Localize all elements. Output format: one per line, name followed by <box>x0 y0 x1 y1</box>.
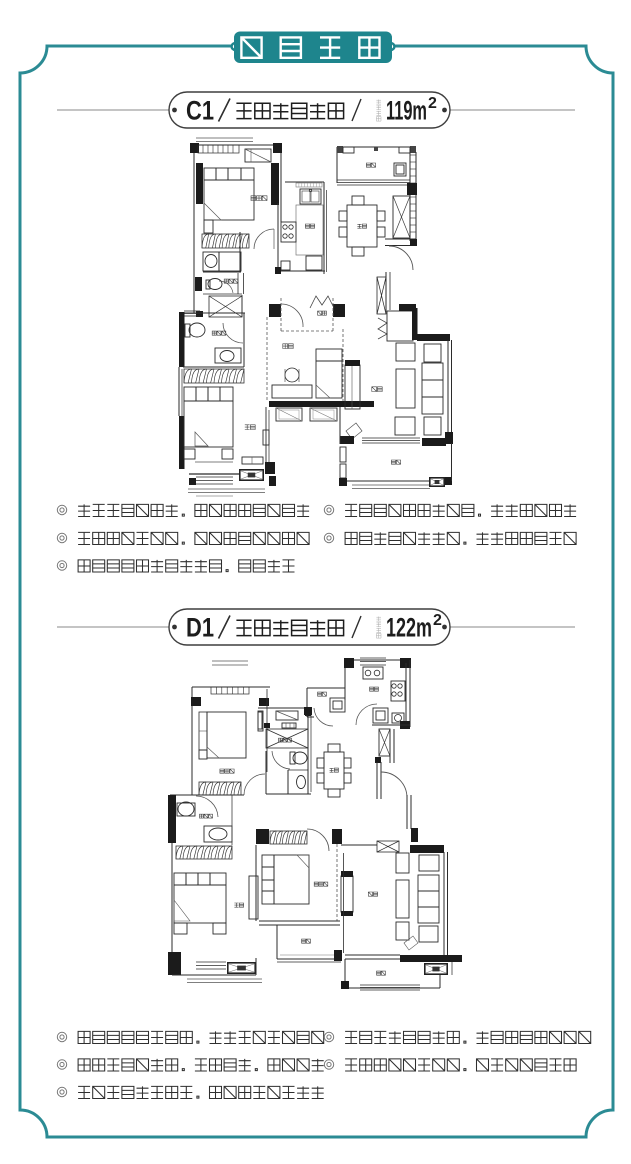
svg-text:119m: 119m <box>386 96 427 126</box>
svg-text:2: 2 <box>428 95 437 112</box>
svg-text:122m: 122m <box>386 613 432 643</box>
svg-text:C1: C1 <box>186 96 214 126</box>
svg-text:D1: D1 <box>186 613 214 643</box>
svg-text:2: 2 <box>433 612 442 629</box>
